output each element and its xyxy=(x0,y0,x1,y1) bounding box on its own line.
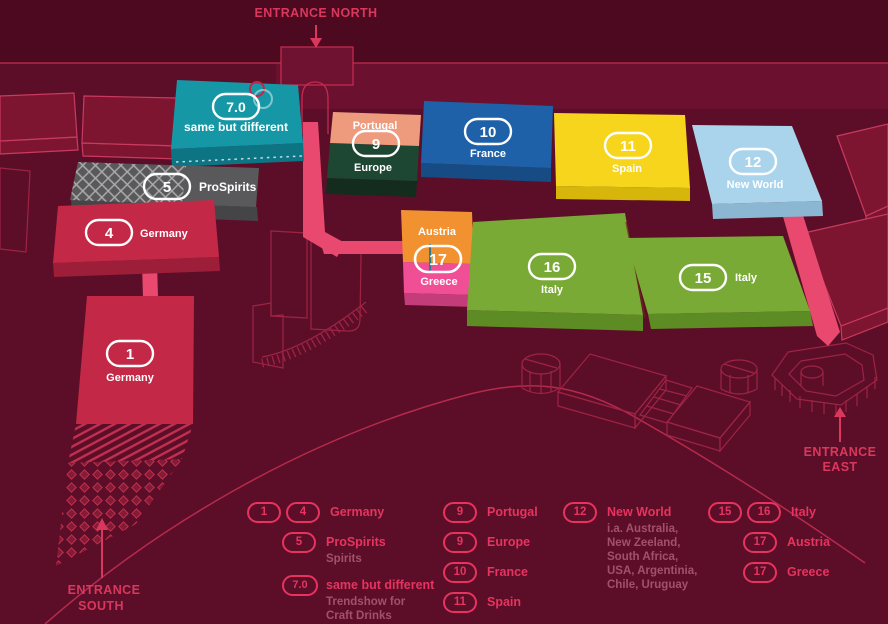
legend-badge: 4 xyxy=(286,502,320,523)
hall-italy-15: 15 Italy xyxy=(626,236,813,329)
hall-badge-number: 11 xyxy=(620,138,636,155)
hall-label: Austria xyxy=(418,226,457,238)
hall-badge-number: 9 xyxy=(372,136,380,153)
legend-row-greece: 17 Greece xyxy=(743,562,830,583)
legend-row-france: 10 France xyxy=(443,562,538,583)
legend-row-italy: 15 16 Italy xyxy=(708,502,830,523)
hall-label: Europe xyxy=(354,162,392,174)
legend-badge: 1 xyxy=(247,502,281,523)
legend-column-1: 1 4 Germany 5 ProSpirits Spirits 7.0 sam… xyxy=(247,502,434,624)
legend-label: Spain xyxy=(487,592,521,612)
hall-label: New World xyxy=(727,179,784,191)
legend-row-new-world: 12 New World i.a. Australia, New Zeeland… xyxy=(563,502,697,592)
legend-label: New World xyxy=(607,502,697,522)
hall-badge-number: 1 xyxy=(126,346,134,363)
legend-row-same-but-different: 7.0 same but different Trendshow for Cra… xyxy=(282,575,434,623)
legend-label: same but different xyxy=(326,575,434,595)
legend-label: Europe xyxy=(487,532,530,552)
legend-badge: 15 xyxy=(708,502,742,523)
legend-badge: 10 xyxy=(443,562,477,583)
legend-label: Austria xyxy=(787,532,830,552)
hall-label: Greece xyxy=(420,276,457,288)
legend-column-4: 15 16 Italy 17 Austria 17 Greece xyxy=(708,502,830,592)
north-plaza xyxy=(276,63,888,109)
legend-badge: 9 xyxy=(443,502,477,523)
legend-row-spain: 11 Spain xyxy=(443,592,538,613)
legend-badge: 5 xyxy=(282,532,316,553)
hall-badge-number: 5 xyxy=(163,179,171,196)
legend-column-2: 9 Portugal 9 Europe 10 France 11 Spain xyxy=(443,502,538,622)
legend-badge: 11 xyxy=(443,592,477,613)
hall-same-but-different: 7.0 same but different xyxy=(171,80,304,167)
hall-label: France xyxy=(470,148,506,160)
hall-badge-number: 15 xyxy=(695,270,712,287)
hall-label: same but different xyxy=(184,120,288,134)
legend-badge: 9 xyxy=(443,532,477,553)
entrance-south-label-1: ENTRANCE xyxy=(68,583,141,597)
legend-label: Italy xyxy=(791,502,816,522)
legend-row-portugal: 9 Portugal xyxy=(443,502,538,523)
hall-spain: 11 Spain xyxy=(554,113,690,201)
hall-label: Germany xyxy=(106,372,155,384)
hall-badge-number: 17 xyxy=(429,252,447,269)
legend-sublabel: i.a. Australia, New Zeeland, South Afric… xyxy=(607,522,697,592)
legend-row-europe: 9 Europe xyxy=(443,532,538,553)
exhibition-hall-map: 7.0 same but different 5 ProSpirits 4 Ge… xyxy=(0,0,888,624)
legend-label: Greece xyxy=(787,562,829,582)
hall-label: Italy xyxy=(735,272,758,284)
striped-tail xyxy=(68,424,193,463)
legend-column-3: 12 New World i.a. Australia, New Zeeland… xyxy=(563,502,697,601)
legend-badge: 7.0 xyxy=(282,575,318,596)
legend-label: Germany xyxy=(330,502,384,522)
top-band xyxy=(0,0,888,63)
legend-label: Portugal xyxy=(487,502,538,522)
legend-sublabel: Trendshow for Craft Drinks xyxy=(326,595,434,623)
hall-label: Spain xyxy=(612,163,642,175)
entrance-north-label: ENTRANCE NORTH xyxy=(255,6,378,20)
hall-label: Germany xyxy=(140,228,189,240)
legend-badge: 17 xyxy=(743,532,777,553)
entrance-south-label-2: SOUTH xyxy=(78,599,124,613)
legend-badge: 17 xyxy=(743,562,777,583)
legend-sublabel: Spirits xyxy=(326,552,386,566)
legend-row-prospirits: 5 ProSpirits Spirits xyxy=(282,532,434,566)
hall-badge-number: 12 xyxy=(745,154,762,171)
hall-label: Italy xyxy=(541,284,564,296)
hall-italy-16: 16 Italy xyxy=(467,213,645,331)
hall-austria-greece: Austria 17 Greece xyxy=(401,210,476,307)
legend-label: ProSpirits xyxy=(326,532,386,552)
hall-badge-number: 7.0 xyxy=(226,99,246,115)
entrance-east-label-1: ENTRANCE xyxy=(804,445,877,459)
hall-germany-4: 4 Germany xyxy=(53,200,220,277)
legend-row-austria: 17 Austria xyxy=(743,532,830,553)
hall-badge-number: 10 xyxy=(480,124,497,141)
legend-row-germany: 1 4 Germany xyxy=(247,502,434,523)
hall-label: ProSpirits xyxy=(199,180,257,194)
hall-portugal-europe: Portugal 9 Europe xyxy=(326,112,421,197)
hall-badge-number: 4 xyxy=(105,225,114,242)
legend-label: France xyxy=(487,562,528,582)
hall-france: 10 France xyxy=(421,101,553,182)
hall-badge-number: 16 xyxy=(544,259,561,276)
legend-badge: 12 xyxy=(563,502,597,523)
entrance-east-label-2: EAST xyxy=(823,460,858,474)
legend-badge: 16 xyxy=(747,502,781,523)
walkway-to-austria xyxy=(320,241,415,254)
